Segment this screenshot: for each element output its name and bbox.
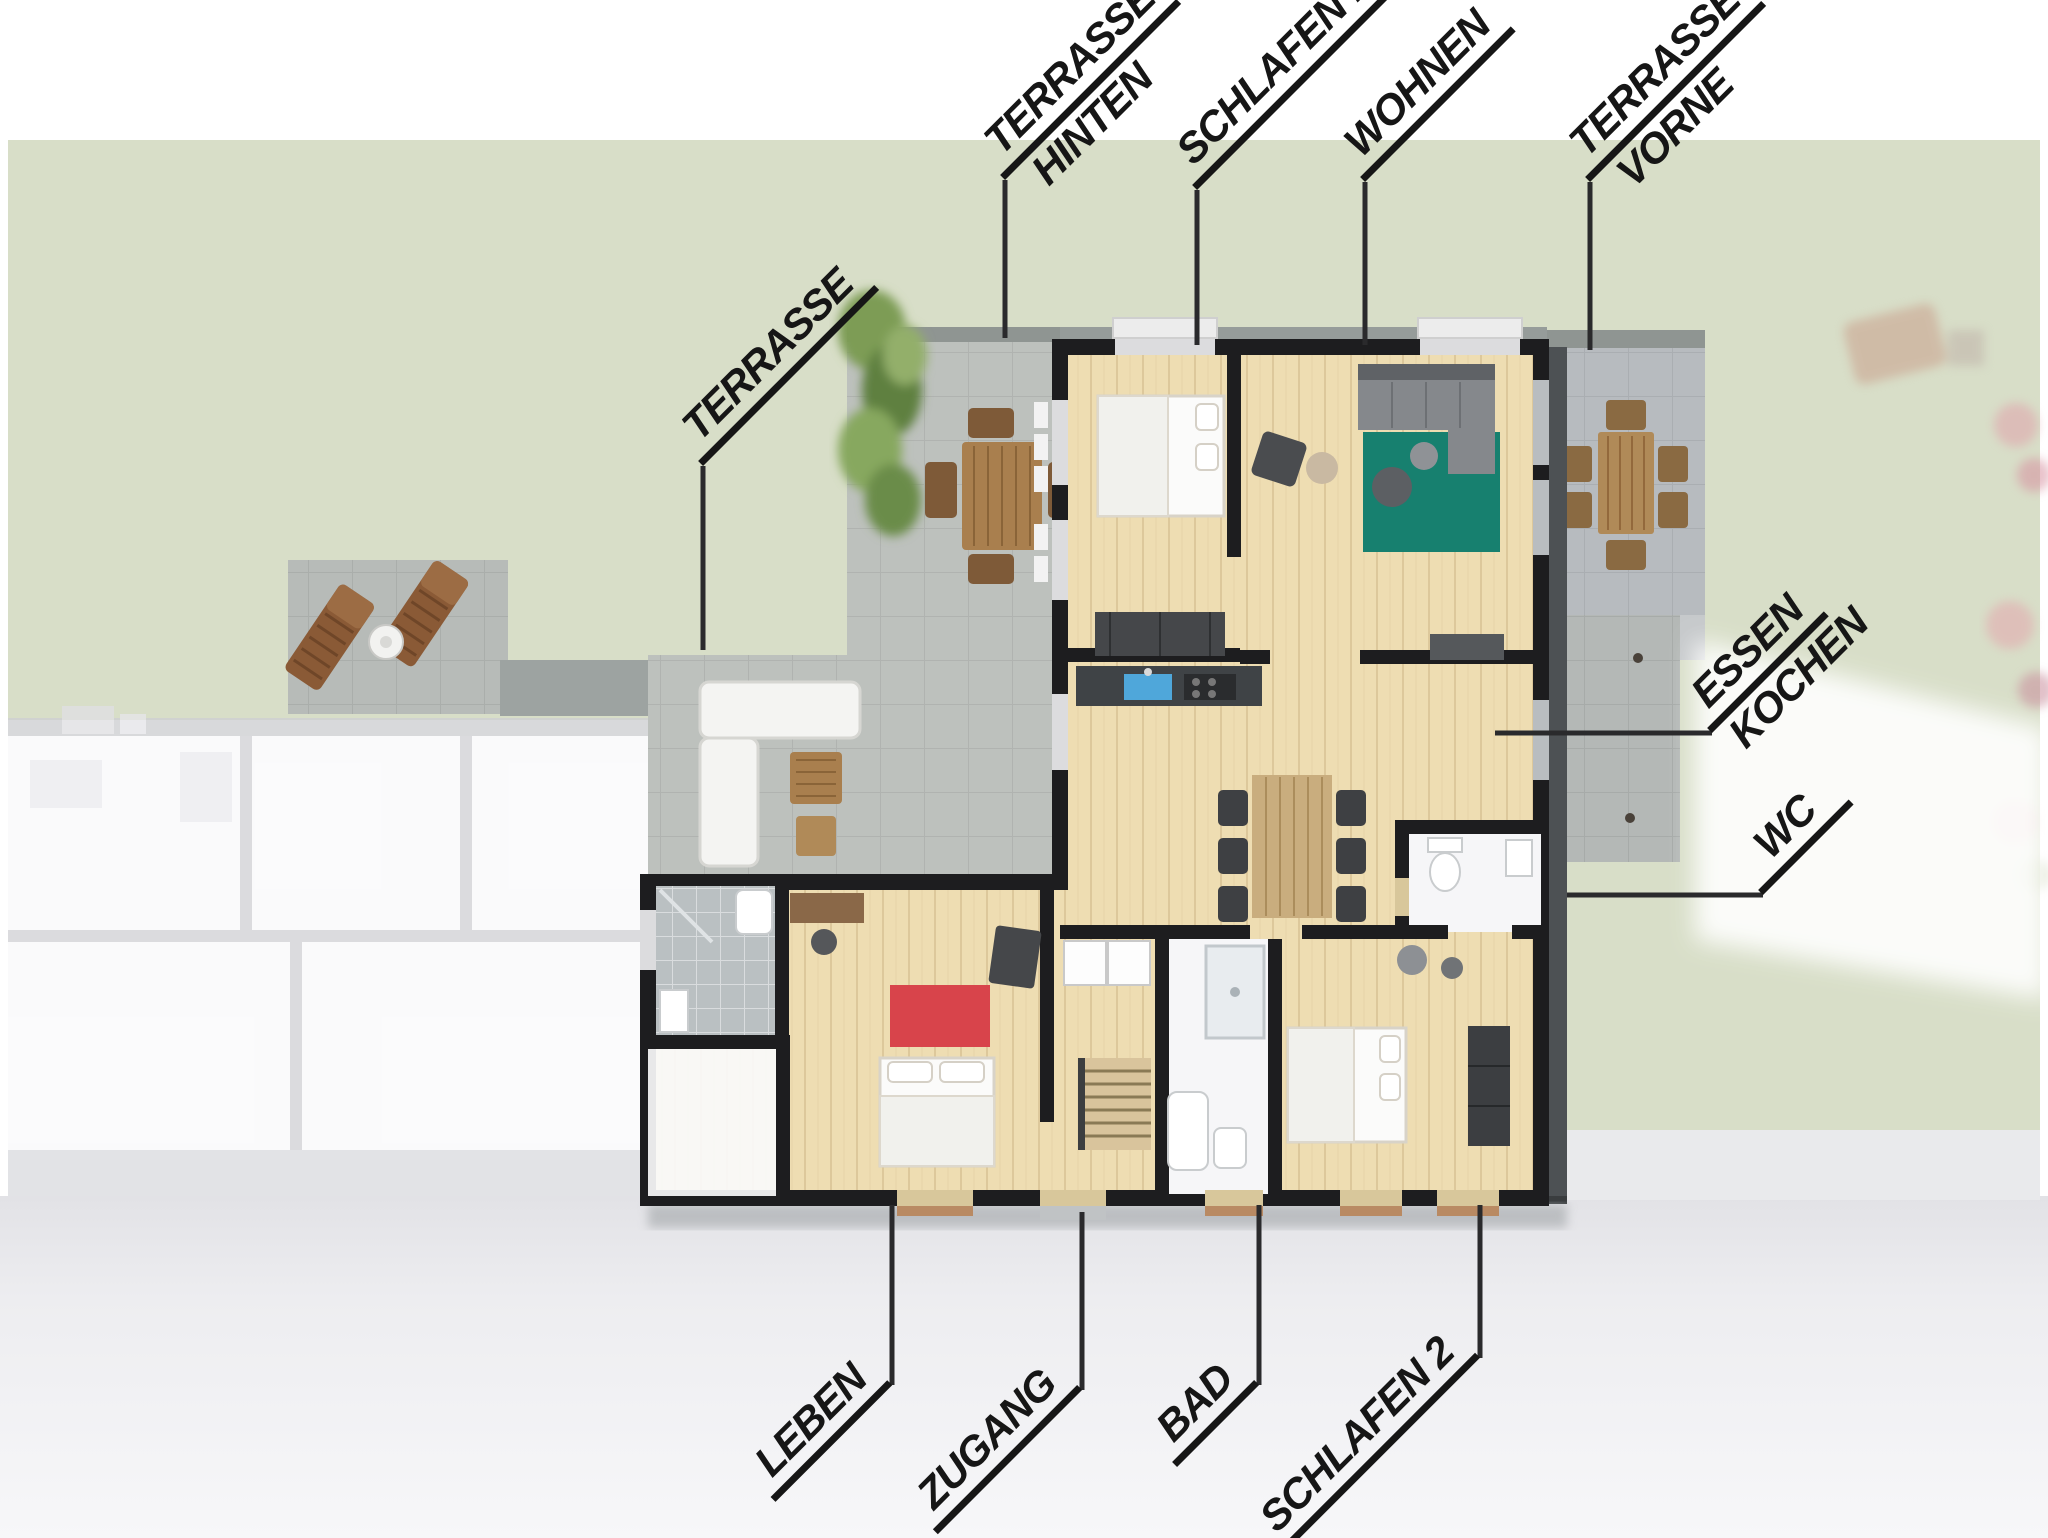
- garden-east-edge: [1565, 1130, 2040, 1200]
- south-shadow: [648, 1204, 1567, 1228]
- desk: [790, 893, 864, 923]
- paving-marker: [1625, 813, 1635, 823]
- pillow: [1196, 404, 1218, 430]
- neighbor-chimney: [62, 706, 114, 734]
- chair: [1336, 886, 1366, 922]
- pouf: [1397, 945, 1427, 975]
- pouf: [1410, 442, 1438, 470]
- dining-table: [1252, 775, 1332, 918]
- pouf: [1372, 467, 1412, 507]
- toilet-tank: [1428, 838, 1462, 852]
- kitchen-sink: [1124, 674, 1172, 700]
- neighbor-house: [8, 706, 652, 1196]
- desk-chair: [811, 929, 837, 955]
- chair: [1218, 886, 1248, 922]
- chair: [1218, 790, 1248, 826]
- neighbor-roof-band: [8, 1150, 652, 1196]
- washer: [1064, 941, 1106, 985]
- pillow: [1380, 1036, 1400, 1062]
- sideboard: [1430, 634, 1504, 660]
- chair: [1336, 838, 1366, 874]
- pouf: [1306, 452, 1338, 484]
- neighbor-floor: [8, 718, 652, 1196]
- sun-loungers: [283, 559, 508, 714]
- red-rug: [890, 985, 990, 1047]
- sofa-chaise: [1448, 428, 1495, 474]
- bad-toilet: [1214, 1128, 1246, 1168]
- hall-wardrobe: [988, 925, 1042, 989]
- chair: [1336, 790, 1366, 826]
- shower-sink: [660, 990, 688, 1032]
- floor-plan-scene: [0, 0, 2048, 1538]
- wardrobe: [1468, 1026, 1510, 1146]
- pillow: [1380, 1074, 1400, 1100]
- pillow: [1196, 444, 1218, 470]
- pillow: [888, 1062, 932, 1082]
- pouf: [1441, 957, 1463, 979]
- floor-plan-page: TERRASSE HINTEN SCHLAFEN 1 WOHNEN TERRAS…: [0, 0, 2048, 1538]
- pillow: [940, 1062, 984, 1082]
- paving-marker: [1633, 653, 1643, 663]
- wc-sink: [1506, 840, 1532, 876]
- chair: [1218, 838, 1248, 874]
- neighbor-corner: [648, 1049, 776, 1196]
- bath-sink: [1168, 1092, 1208, 1170]
- washer: [1108, 941, 1150, 985]
- toilet: [1430, 853, 1460, 891]
- walkway: [500, 660, 665, 716]
- toilet: [736, 890, 772, 934]
